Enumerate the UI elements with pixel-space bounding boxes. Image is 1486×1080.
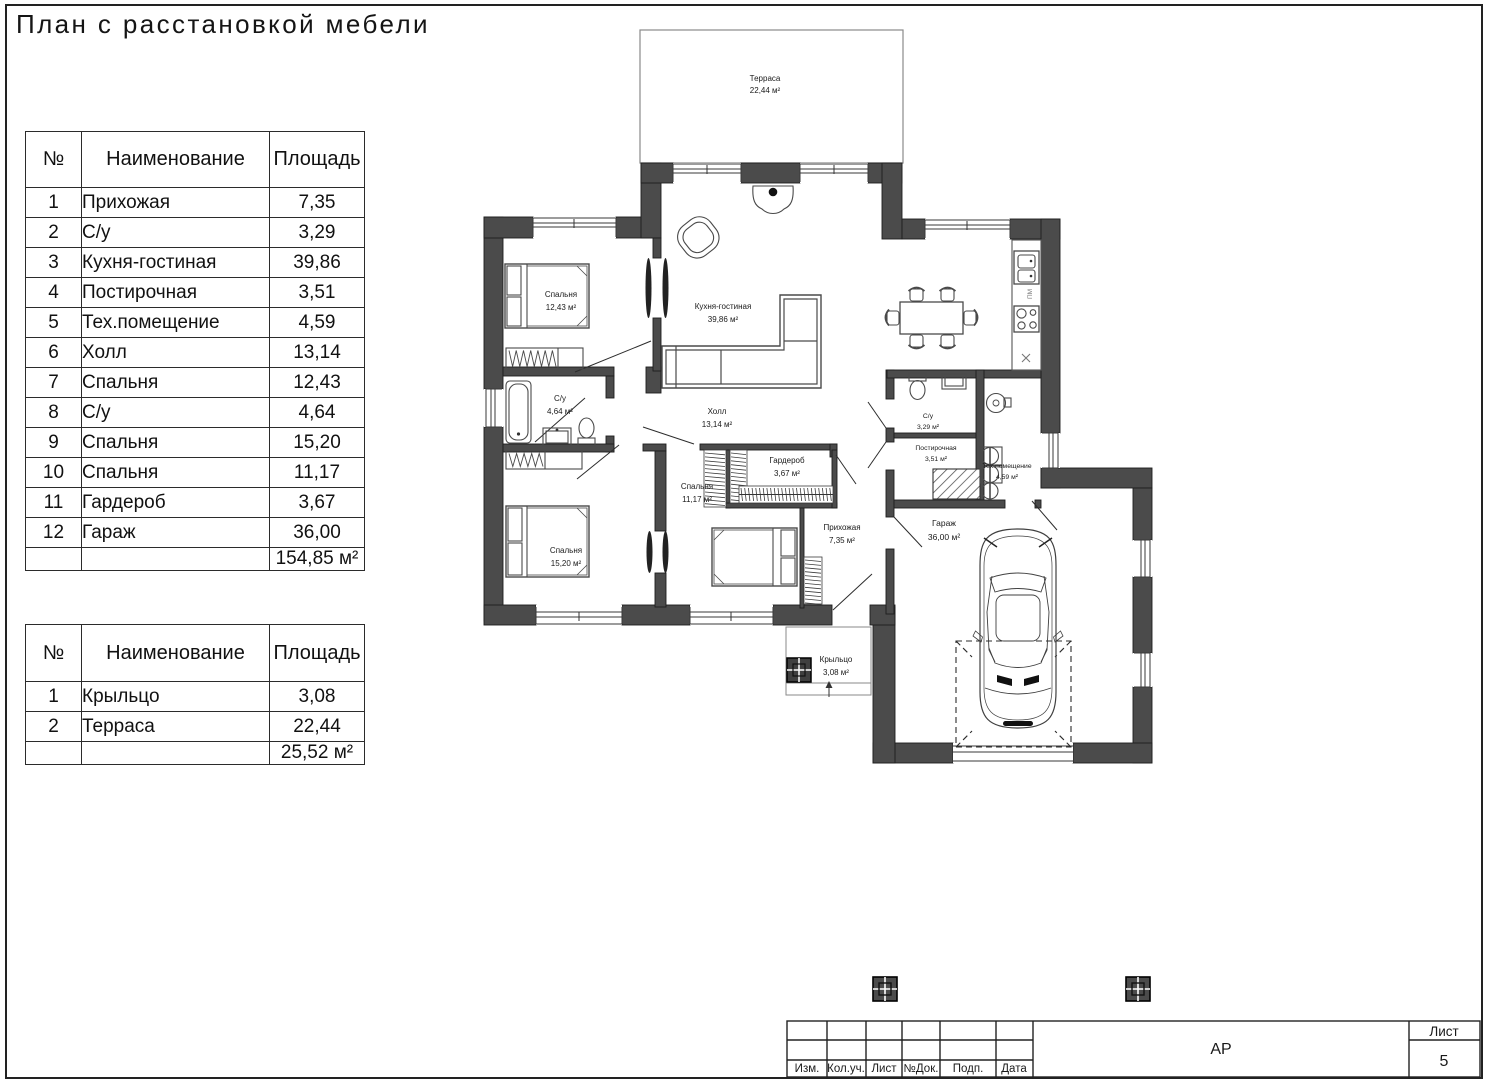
- svg-text:АР: АР: [1210, 1041, 1231, 1058]
- svg-text:№Док.: №Док.: [904, 1063, 939, 1075]
- svg-text:Лист: Лист: [1429, 1024, 1458, 1039]
- svg-text:Лист: Лист: [872, 1063, 898, 1075]
- svg-text:5: 5: [1440, 1053, 1449, 1070]
- svg-text:Подп.: Подп.: [953, 1063, 984, 1075]
- svg-text:Дата: Дата: [1001, 1063, 1027, 1075]
- svg-text:Изм.: Изм.: [795, 1063, 820, 1075]
- svg-text:Кол.уч.: Кол.уч.: [827, 1063, 865, 1075]
